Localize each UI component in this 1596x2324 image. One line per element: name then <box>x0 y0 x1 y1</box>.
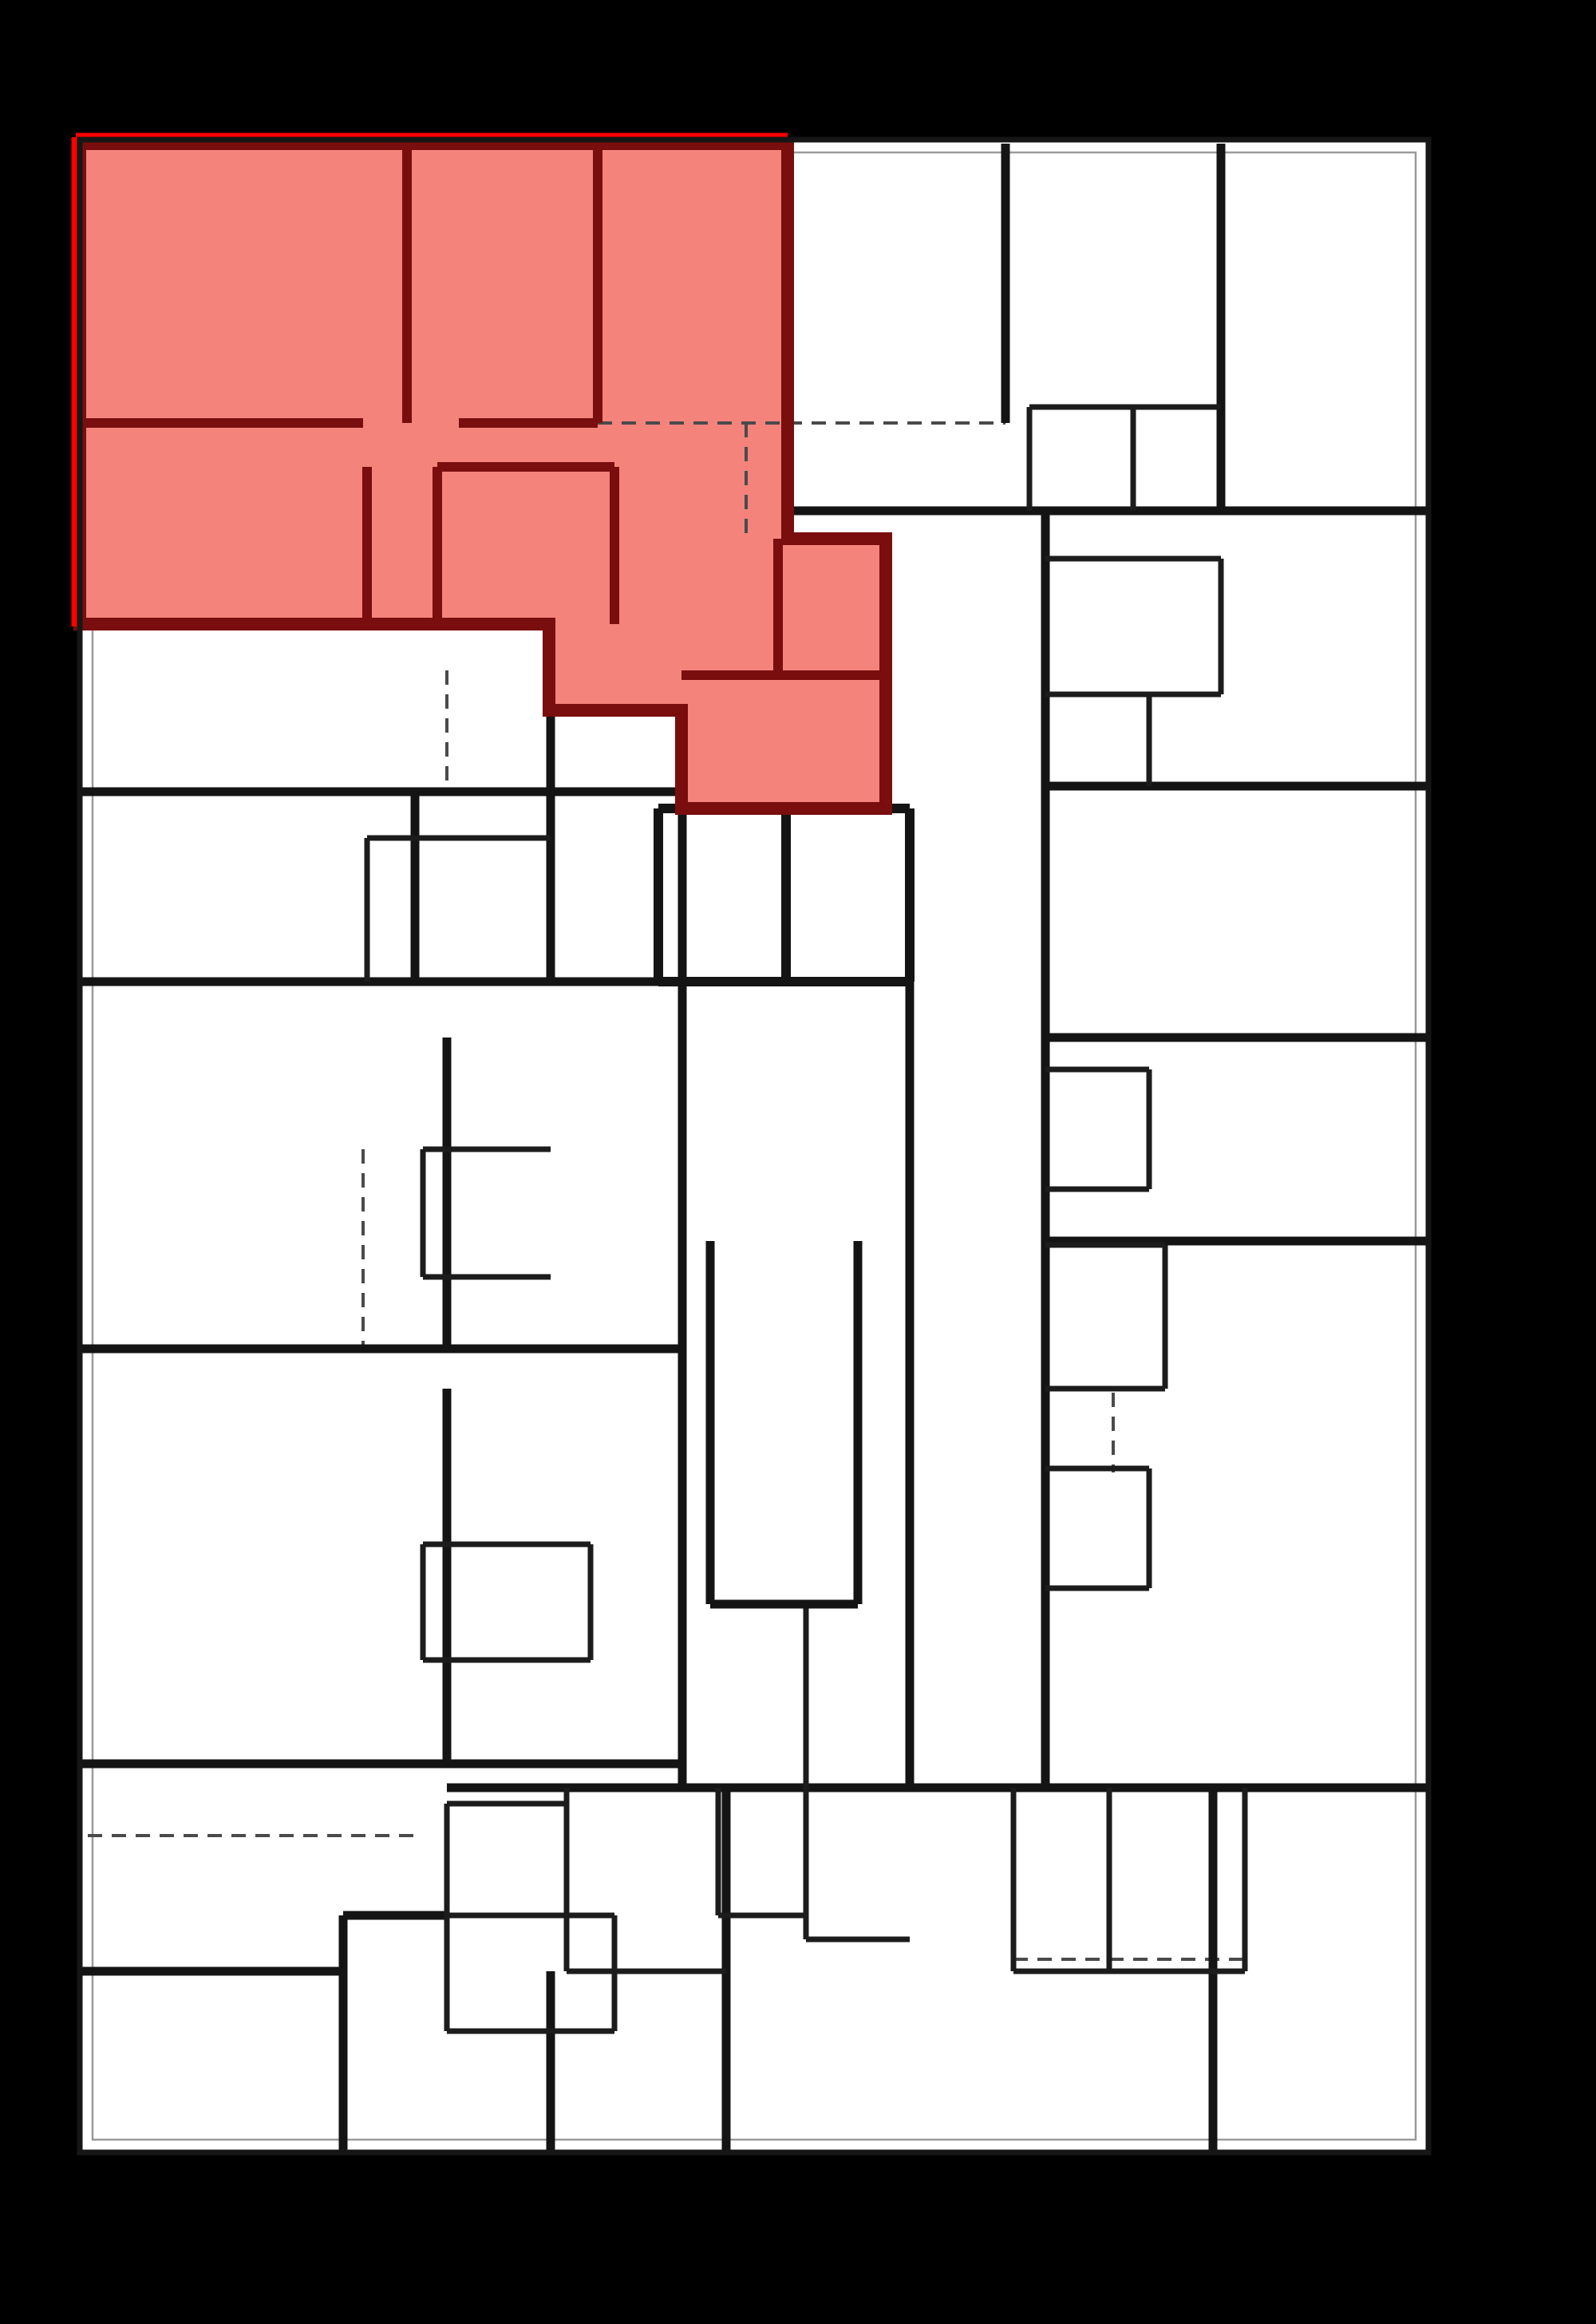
floor-plan <box>0 0 1596 2324</box>
screenshot-root <box>0 0 1596 2324</box>
